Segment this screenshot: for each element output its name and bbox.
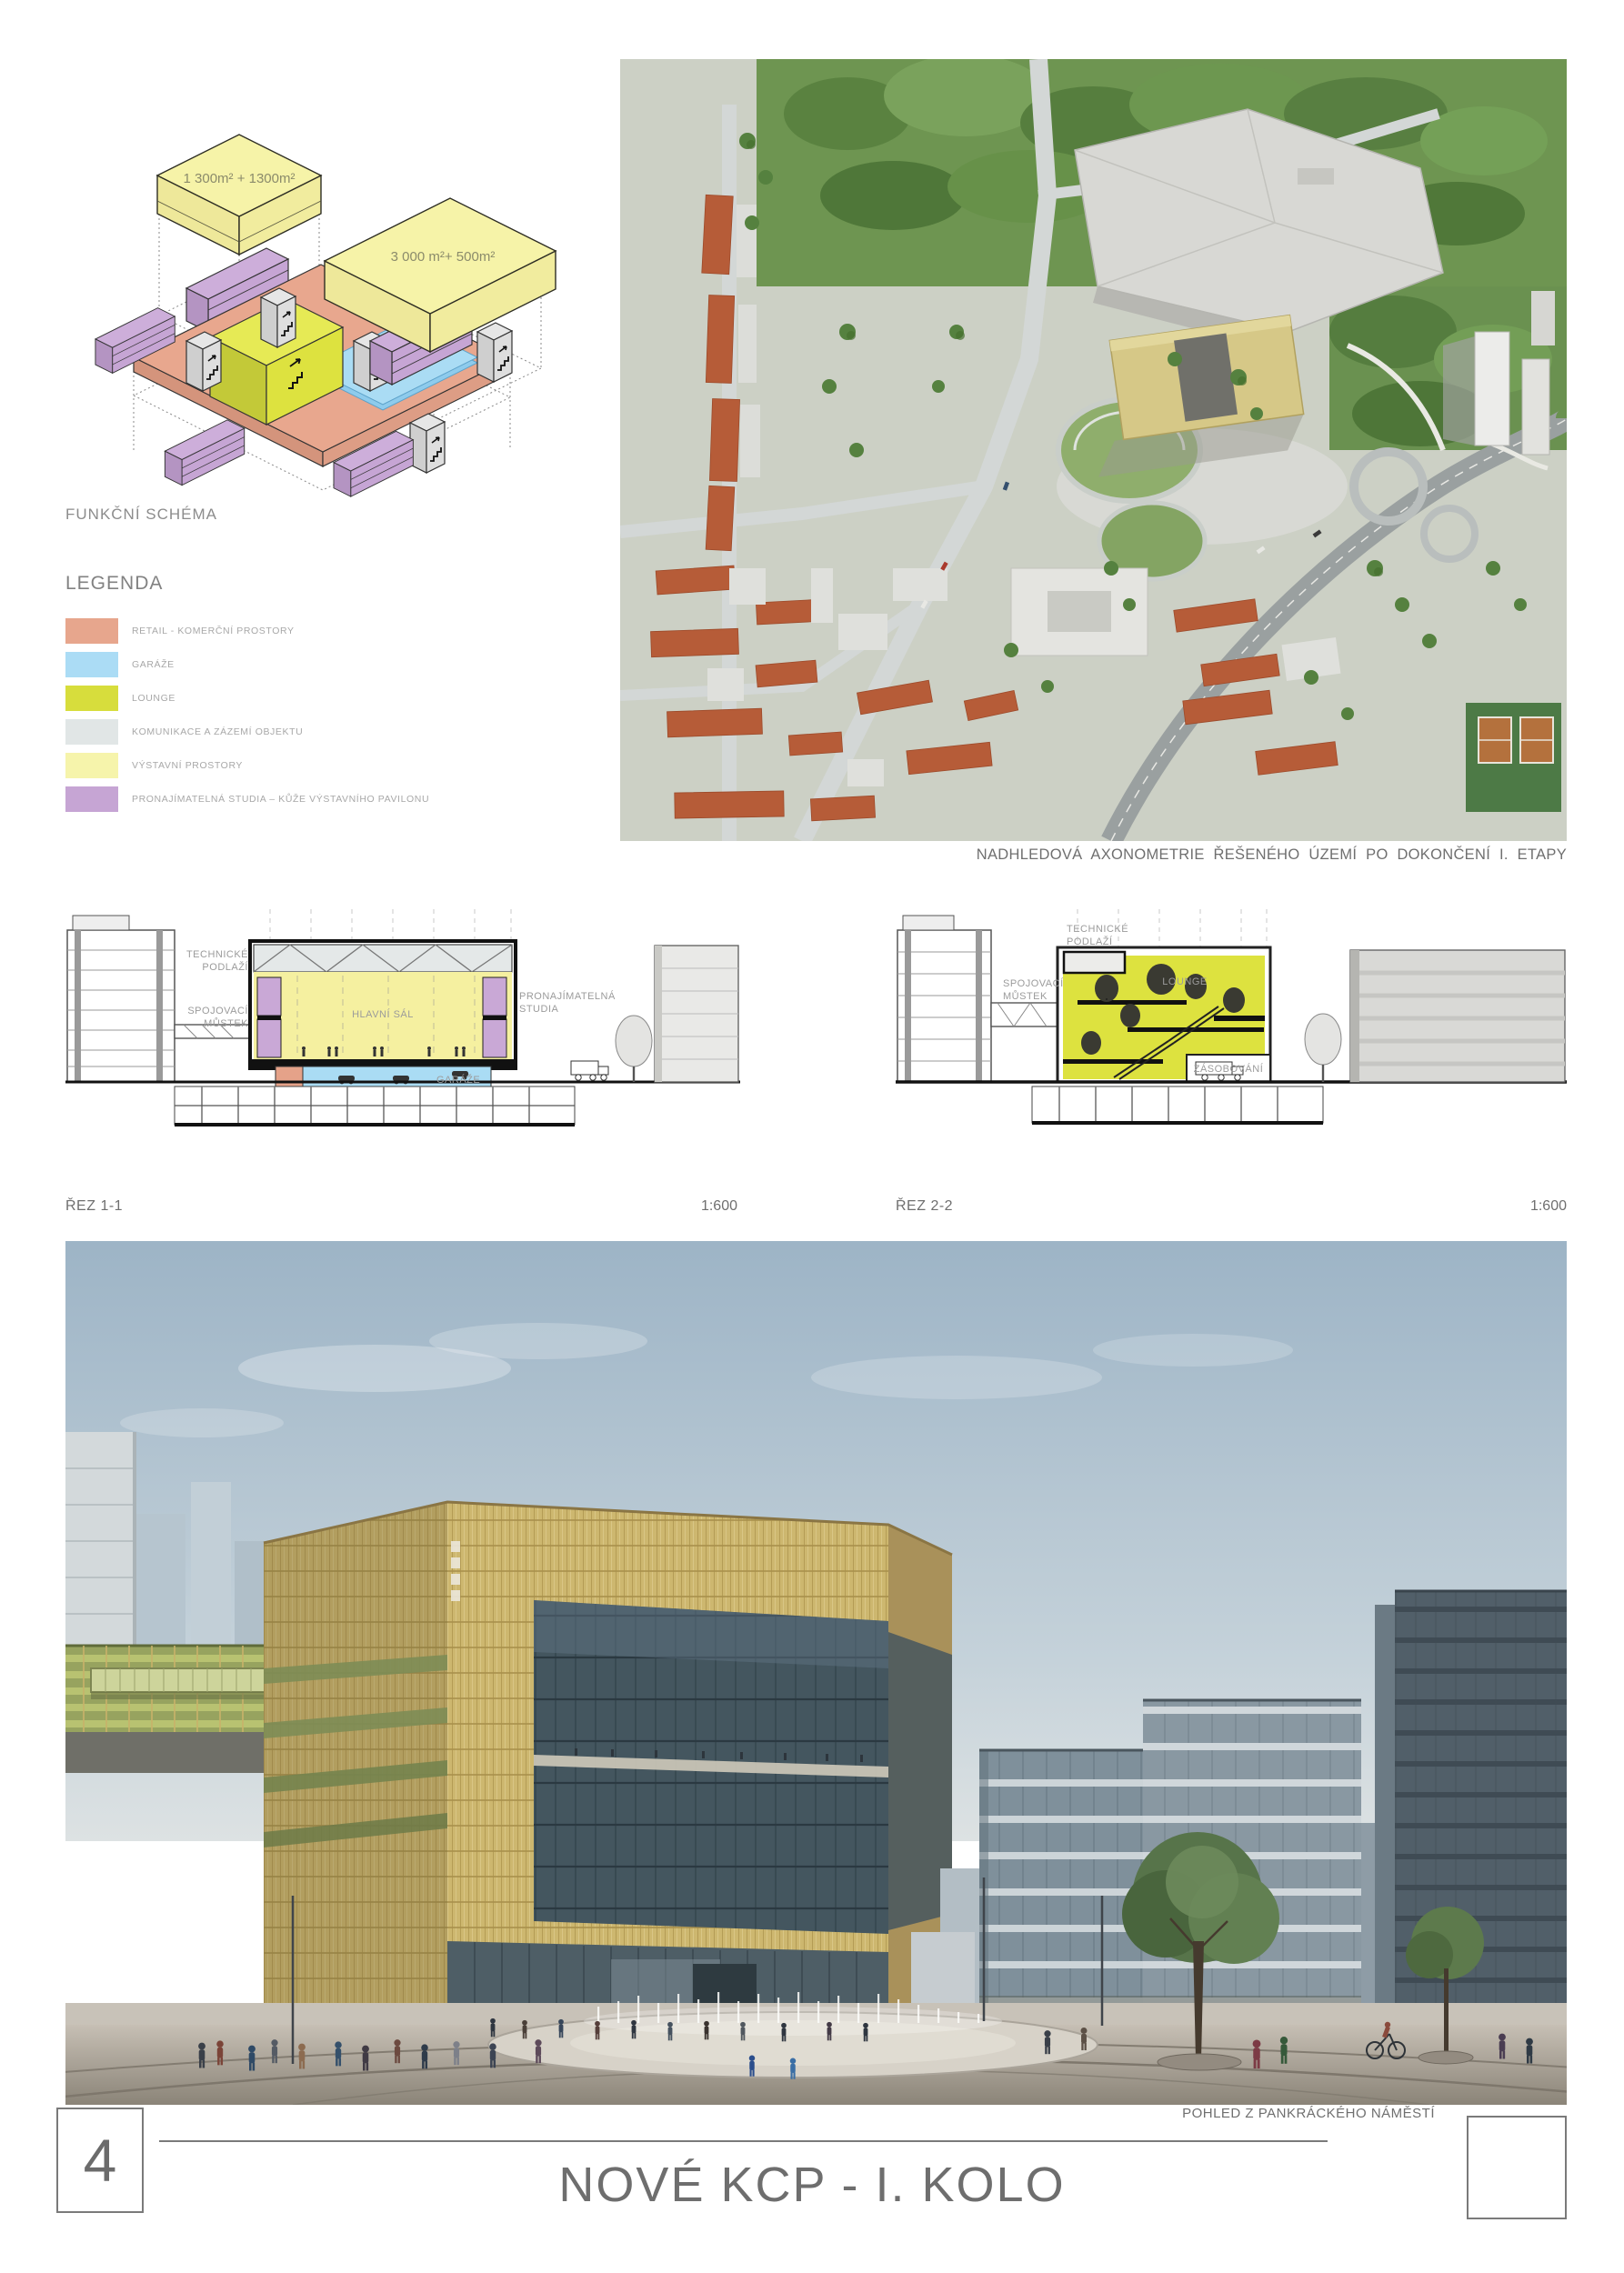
- legend-title: LEGENDA: [65, 573, 163, 595]
- ground-structure: [65, 1082, 740, 1125]
- stair-core-icon: [186, 332, 221, 391]
- right-building: [655, 946, 738, 1082]
- svg-text:ZÁSOBOVÁNÍ: ZÁSOBOVÁNÍ: [1194, 1063, 1264, 1075]
- exhibition-box-1: 1 300m² + 1300m²: [157, 135, 321, 255]
- existing-building-cut: [897, 916, 991, 1082]
- gold-pavilion: [264, 1502, 955, 2030]
- legend-row: PRONAJÍMATELNÁ STUDIA – KŮŽE VÝSTAVNÍHO …: [65, 786, 429, 812]
- legend-label: GARÁŽE: [132, 659, 175, 670]
- existing-building-cut: [67, 916, 175, 1082]
- legend-row: RETAIL - KOMERČNÍ PROSTORY: [65, 618, 429, 644]
- tennis-courts: [1466, 703, 1561, 812]
- render-caption: POHLED Z PANKRÁCKÉHO NÁMĚSTÍ: [1182, 2106, 1435, 2121]
- section1-scale: 1:600: [701, 1198, 737, 1215]
- aerial-axonometry-image: [620, 59, 1567, 841]
- plaza-perspective-image: [65, 1241, 1567, 2105]
- tree-sketch: [1305, 1014, 1341, 1082]
- svg-text:PRONAJÍMATELNÁ: PRONAJÍMATELNÁ: [519, 990, 616, 1002]
- stair-core-icon: [477, 323, 512, 382]
- svg-text:PODLAŽÍ: PODLAŽÍ: [1067, 936, 1113, 947]
- walkway-bridge: [91, 1668, 270, 1692]
- svg-text:MŮSTEK: MŮSTEK: [204, 1017, 248, 1029]
- schema-title: FUNKČNÍ SCHÉMA: [65, 506, 217, 524]
- truck-glyph: [571, 1061, 608, 1080]
- studio-bar: [165, 420, 244, 486]
- legend-label: RETAIL - KOMERČNÍ PROSTORY: [132, 626, 295, 636]
- ground-structure: [896, 1082, 1567, 1123]
- svg-text:PODLAŽÍ: PODLAŽÍ: [202, 961, 248, 973]
- svg-text:STUDIA: STUDIA: [519, 1004, 559, 1015]
- area-label-1: 1 300m² + 1300m²: [184, 171, 296, 186]
- legend-row: GARÁŽE: [65, 652, 429, 677]
- presentation-board: 1 300m² + 1300m² 3 000 m²+ 500m² FUNKČNÍ…: [0, 0, 1624, 2273]
- section-1-1-drawing: TECHNICKÉ PODLAŽÍ SPOJOVACÍ MŮSTEK HLAVN…: [65, 905, 740, 1177]
- legend-swatch-vystavni: [65, 753, 118, 778]
- legend-row: LOUNGE: [65, 686, 429, 711]
- legend-swatch-studia: [65, 786, 118, 812]
- connecting-bridge: [991, 1003, 1058, 1026]
- legend-label: VÝSTAVNÍ PROSTORY: [132, 760, 243, 771]
- svg-text:GARÁŽE: GARÁŽE: [436, 1074, 480, 1086]
- section2-name: ŘEZ 2-2: [896, 1198, 953, 1215]
- board-title: NOVÉ KCP - I. KOLO: [0, 2157, 1624, 2213]
- tree-sketch: [616, 1016, 652, 1082]
- legend-swatch-lounge: [65, 686, 118, 711]
- area-label-2: 3 000 m²+ 500m²: [391, 249, 496, 265]
- svg-text:MŮSTEK: MŮSTEK: [1003, 990, 1048, 1002]
- section2-scale: 1:600: [1530, 1198, 1567, 1215]
- legend: RETAIL - KOMERČNÍ PROSTORY GARÁŽE LOUNGE…: [65, 618, 429, 820]
- section-2-2-drawing: TECHNICKÉ PODLAŽÍ SPOJOVACÍ MŮSTEK LOUNG…: [896, 905, 1567, 1177]
- svg-text:SPOJOVACÍ: SPOJOVACÍ: [187, 1005, 248, 1016]
- legend-row: KOMUNIKACE A ZÁZEMÍ OBJEKTU: [65, 719, 429, 745]
- svg-text:TECHNICKÉ: TECHNICKÉ: [186, 948, 248, 960]
- svg-text:LOUNGE: LOUNGE: [1162, 976, 1207, 987]
- svg-text:SPOJOVACÍ: SPOJOVACÍ: [1003, 977, 1064, 989]
- footer-empty-box: [1467, 2116, 1567, 2219]
- functional-schema-diagram: 1 300m² + 1300m² 3 000 m²+ 500m²: [50, 68, 559, 505]
- legend-label: PRONAJÍMATELNÁ STUDIA – KŮŽE VÝSTAVNÍHO …: [132, 794, 429, 805]
- legend-swatch-komunikace: [65, 719, 118, 745]
- svg-text:HLAVNÍ SÁL: HLAVNÍ SÁL: [352, 1008, 414, 1020]
- legend-swatch-garaze: [65, 652, 118, 677]
- stair-core-icon: [261, 288, 296, 347]
- legend-swatch-retail: [65, 618, 118, 644]
- section1-name: ŘEZ 1-1: [65, 1198, 123, 1215]
- footer-divider: [159, 2140, 1328, 2142]
- stair-core-icon: [410, 414, 445, 473]
- lounge-pavilion: [1058, 947, 1270, 1082]
- legend-label: LOUNGE: [132, 693, 175, 704]
- legend-label: KOMUNIKACE A ZÁZEMÍ OBJEKTU: [132, 726, 303, 737]
- legend-row: VÝSTAVNÍ PROSTORY: [65, 753, 429, 778]
- svg-text:TECHNICKÉ: TECHNICKÉ: [1067, 923, 1128, 935]
- main-hall: [250, 941, 516, 1068]
- aerial-caption: NADHLEDOVÁ AXONOMETRIE ŘEŠENÉHO ÚZEMÍ PO…: [977, 846, 1567, 864]
- left-green-building: [65, 1646, 270, 1773]
- right-building: [1350, 950, 1565, 1082]
